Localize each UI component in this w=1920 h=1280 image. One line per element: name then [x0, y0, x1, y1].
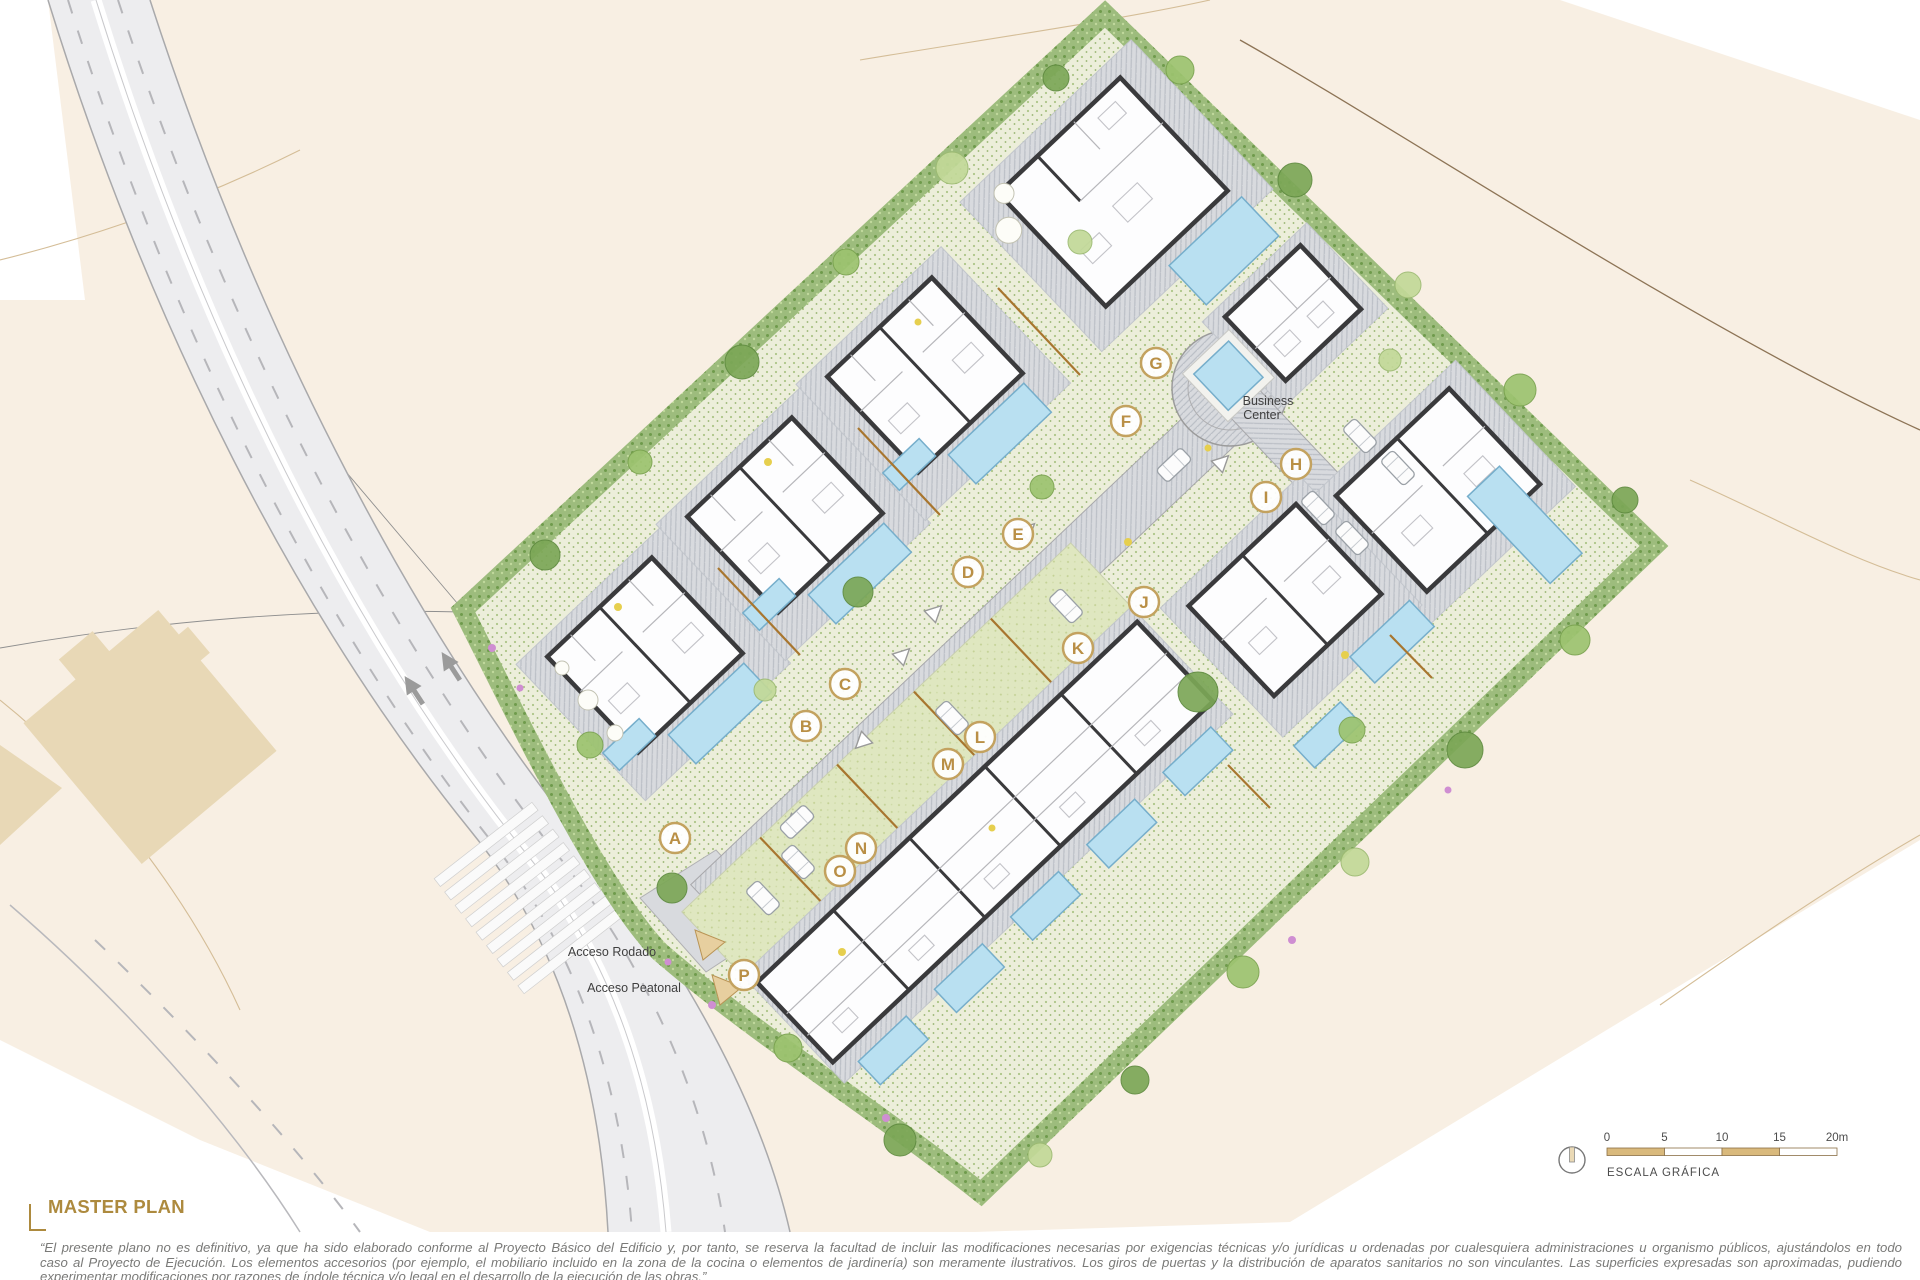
- disclaimer-line-2: caso al Proyecto de Ejecución. Los eleme…: [40, 1256, 1902, 1271]
- svg-text:D: D: [962, 563, 974, 582]
- unit-badge-F: F: [1111, 406, 1141, 436]
- unit-badge-I: I: [1251, 482, 1281, 512]
- unit-badge-C: C: [830, 669, 860, 699]
- unit-badge-E: E: [1003, 519, 1033, 549]
- svg-text:G: G: [1149, 354, 1162, 373]
- unit-badge-J: J: [1129, 587, 1159, 617]
- tree: [843, 577, 873, 607]
- scale-caption: ESCALA GRÁFICA: [1607, 1166, 1720, 1179]
- title-bracket: [29, 1204, 46, 1231]
- tree: [1068, 230, 1092, 254]
- svg-text:F: F: [1121, 412, 1131, 431]
- unit-badge-N: N: [846, 833, 876, 863]
- svg-text:J: J: [1139, 593, 1148, 612]
- unit-badge-O: O: [825, 856, 855, 886]
- scale-tick-5: 5: [1661, 1132, 1667, 1144]
- svg-text:C: C: [839, 675, 851, 694]
- tree: [1339, 717, 1365, 743]
- business-center-label-line2: Center: [1243, 408, 1281, 422]
- page-title: MASTER PLAN: [48, 1196, 185, 1218]
- unit-badge-M: M: [933, 749, 963, 779]
- acceso-peatonal-label: Acceso Peatonal: [587, 981, 681, 995]
- svg-text:N: N: [855, 839, 867, 858]
- scale-segment: [1780, 1148, 1838, 1156]
- svg-text:B: B: [800, 717, 812, 736]
- tree: [754, 679, 776, 701]
- unit-badge-D: D: [953, 557, 983, 587]
- north-arrow-icon: [1559, 1147, 1585, 1173]
- shrub: [607, 725, 623, 741]
- unit-badge-H: H: [1281, 449, 1311, 479]
- svg-text:K: K: [1072, 639, 1085, 658]
- shrub: [578, 690, 598, 710]
- plan-canvas: Business Center Acceso Rodado Acceso Pea…: [0, 0, 1920, 1280]
- svg-text:H: H: [1290, 455, 1302, 474]
- unit-badge-L: L: [965, 722, 995, 752]
- tree: [1030, 475, 1054, 499]
- scale-tick-0: 0: [1604, 1132, 1610, 1144]
- unit-badge-B: B: [791, 711, 821, 741]
- svg-text:L: L: [975, 728, 985, 747]
- disclaimer: “El presente plano no es definitivo, ya …: [40, 1241, 1902, 1280]
- unit-badge-K: K: [1063, 633, 1093, 663]
- scale-tick-20m: 20m: [1826, 1132, 1848, 1144]
- scale-tick-10: 10: [1716, 1132, 1729, 1144]
- tree: [1379, 349, 1401, 371]
- scale-tick-15: 15: [1773, 1132, 1786, 1144]
- svg-text:M: M: [941, 755, 955, 774]
- scale-segment: [1722, 1148, 1780, 1156]
- svg-text:E: E: [1012, 525, 1023, 544]
- svg-text:A: A: [669, 829, 681, 848]
- tree: [1178, 672, 1218, 712]
- business-center-label-line1: Business: [1243, 394, 1294, 408]
- svg-text:P: P: [738, 966, 749, 985]
- unit-badge-A: A: [660, 823, 690, 853]
- acceso-rodado-label: Acceso Rodado: [568, 945, 656, 959]
- master-plan-sheet: Business Center Acceso Rodado Acceso Pea…: [0, 0, 1920, 1280]
- scale-segment: [1665, 1148, 1723, 1156]
- title-block: MASTER PLAN: [36, 1196, 185, 1218]
- disclaimer-line-1: “El presente plano no es definitivo, ya …: [40, 1241, 1902, 1256]
- svg-text:I: I: [1264, 488, 1269, 507]
- disclaimer-line-3: experimentar modificaciones por razones …: [40, 1270, 1902, 1280]
- shrub: [555, 661, 569, 675]
- svg-text:O: O: [833, 862, 846, 881]
- unit-badge-P: P: [729, 960, 759, 990]
- unit-badge-G: G: [1141, 348, 1171, 378]
- scale-segment: [1607, 1148, 1665, 1156]
